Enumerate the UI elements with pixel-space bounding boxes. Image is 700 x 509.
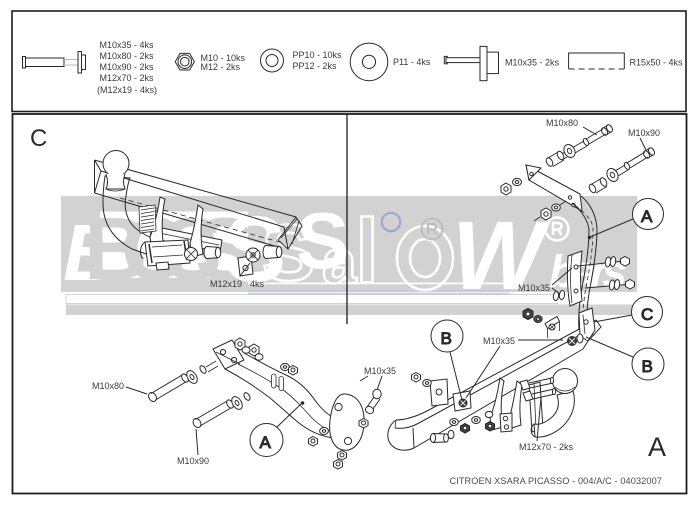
svg-text:A: A: [648, 432, 666, 462]
svg-text:M10x80 - 2ks: M10x80 - 2ks: [100, 51, 155, 61]
svg-text:C: C: [30, 125, 47, 152]
svg-text:M10x35: M10x35: [518, 283, 550, 293]
svg-text:PP12 - 2ks: PP12 - 2ks: [293, 61, 338, 71]
svg-text:M12 - 2ks: M12 - 2ks: [201, 62, 241, 72]
svg-text:P11 - 4ks: P11 - 4ks: [393, 57, 431, 67]
svg-text:M10x80: M10x80: [546, 118, 578, 128]
svg-text:CITROEN XSARA PICASSO - 004/A/: CITROEN XSARA PICASSO - 004/A/C - 040320…: [449, 476, 662, 486]
svg-text:B: B: [642, 357, 653, 376]
svg-text:M12x70 - 2ks: M12x70 - 2ks: [519, 442, 574, 452]
svg-text:R15x50 - 4ks: R15x50 - 4ks: [630, 58, 684, 68]
svg-text:M10x35: M10x35: [364, 366, 396, 376]
svg-text:M10x90: M10x90: [177, 456, 209, 466]
svg-text:M10x90 - 2ks: M10x90 - 2ks: [100, 62, 155, 72]
svg-text:a: a: [322, 228, 357, 297]
svg-text:M12x19: M12x19: [210, 279, 242, 289]
svg-text:M12x70 - 2ks: M12x70 - 2ks: [100, 73, 155, 83]
svg-text:B: B: [441, 329, 452, 348]
svg-text:M10x35 - 2ks: M10x35 - 2ks: [505, 58, 560, 68]
svg-text:PP10 - 10ks: PP10 - 10ks: [293, 50, 343, 60]
svg-text:C: C: [641, 305, 653, 324]
svg-text:M10x90: M10x90: [628, 128, 660, 138]
svg-text:4ks: 4ks: [250, 279, 265, 289]
svg-text:(M12x19 - 4ks): (M12x19 - 4ks): [97, 85, 157, 95]
svg-text:M10x35 - 4ks: M10x35 - 4ks: [100, 40, 155, 50]
svg-text:A: A: [641, 207, 653, 226]
svg-text:M10x80: M10x80: [92, 381, 124, 391]
svg-text:M10x35: M10x35: [483, 336, 515, 346]
svg-text:A: A: [260, 433, 272, 452]
svg-text:W: W: [452, 201, 551, 310]
